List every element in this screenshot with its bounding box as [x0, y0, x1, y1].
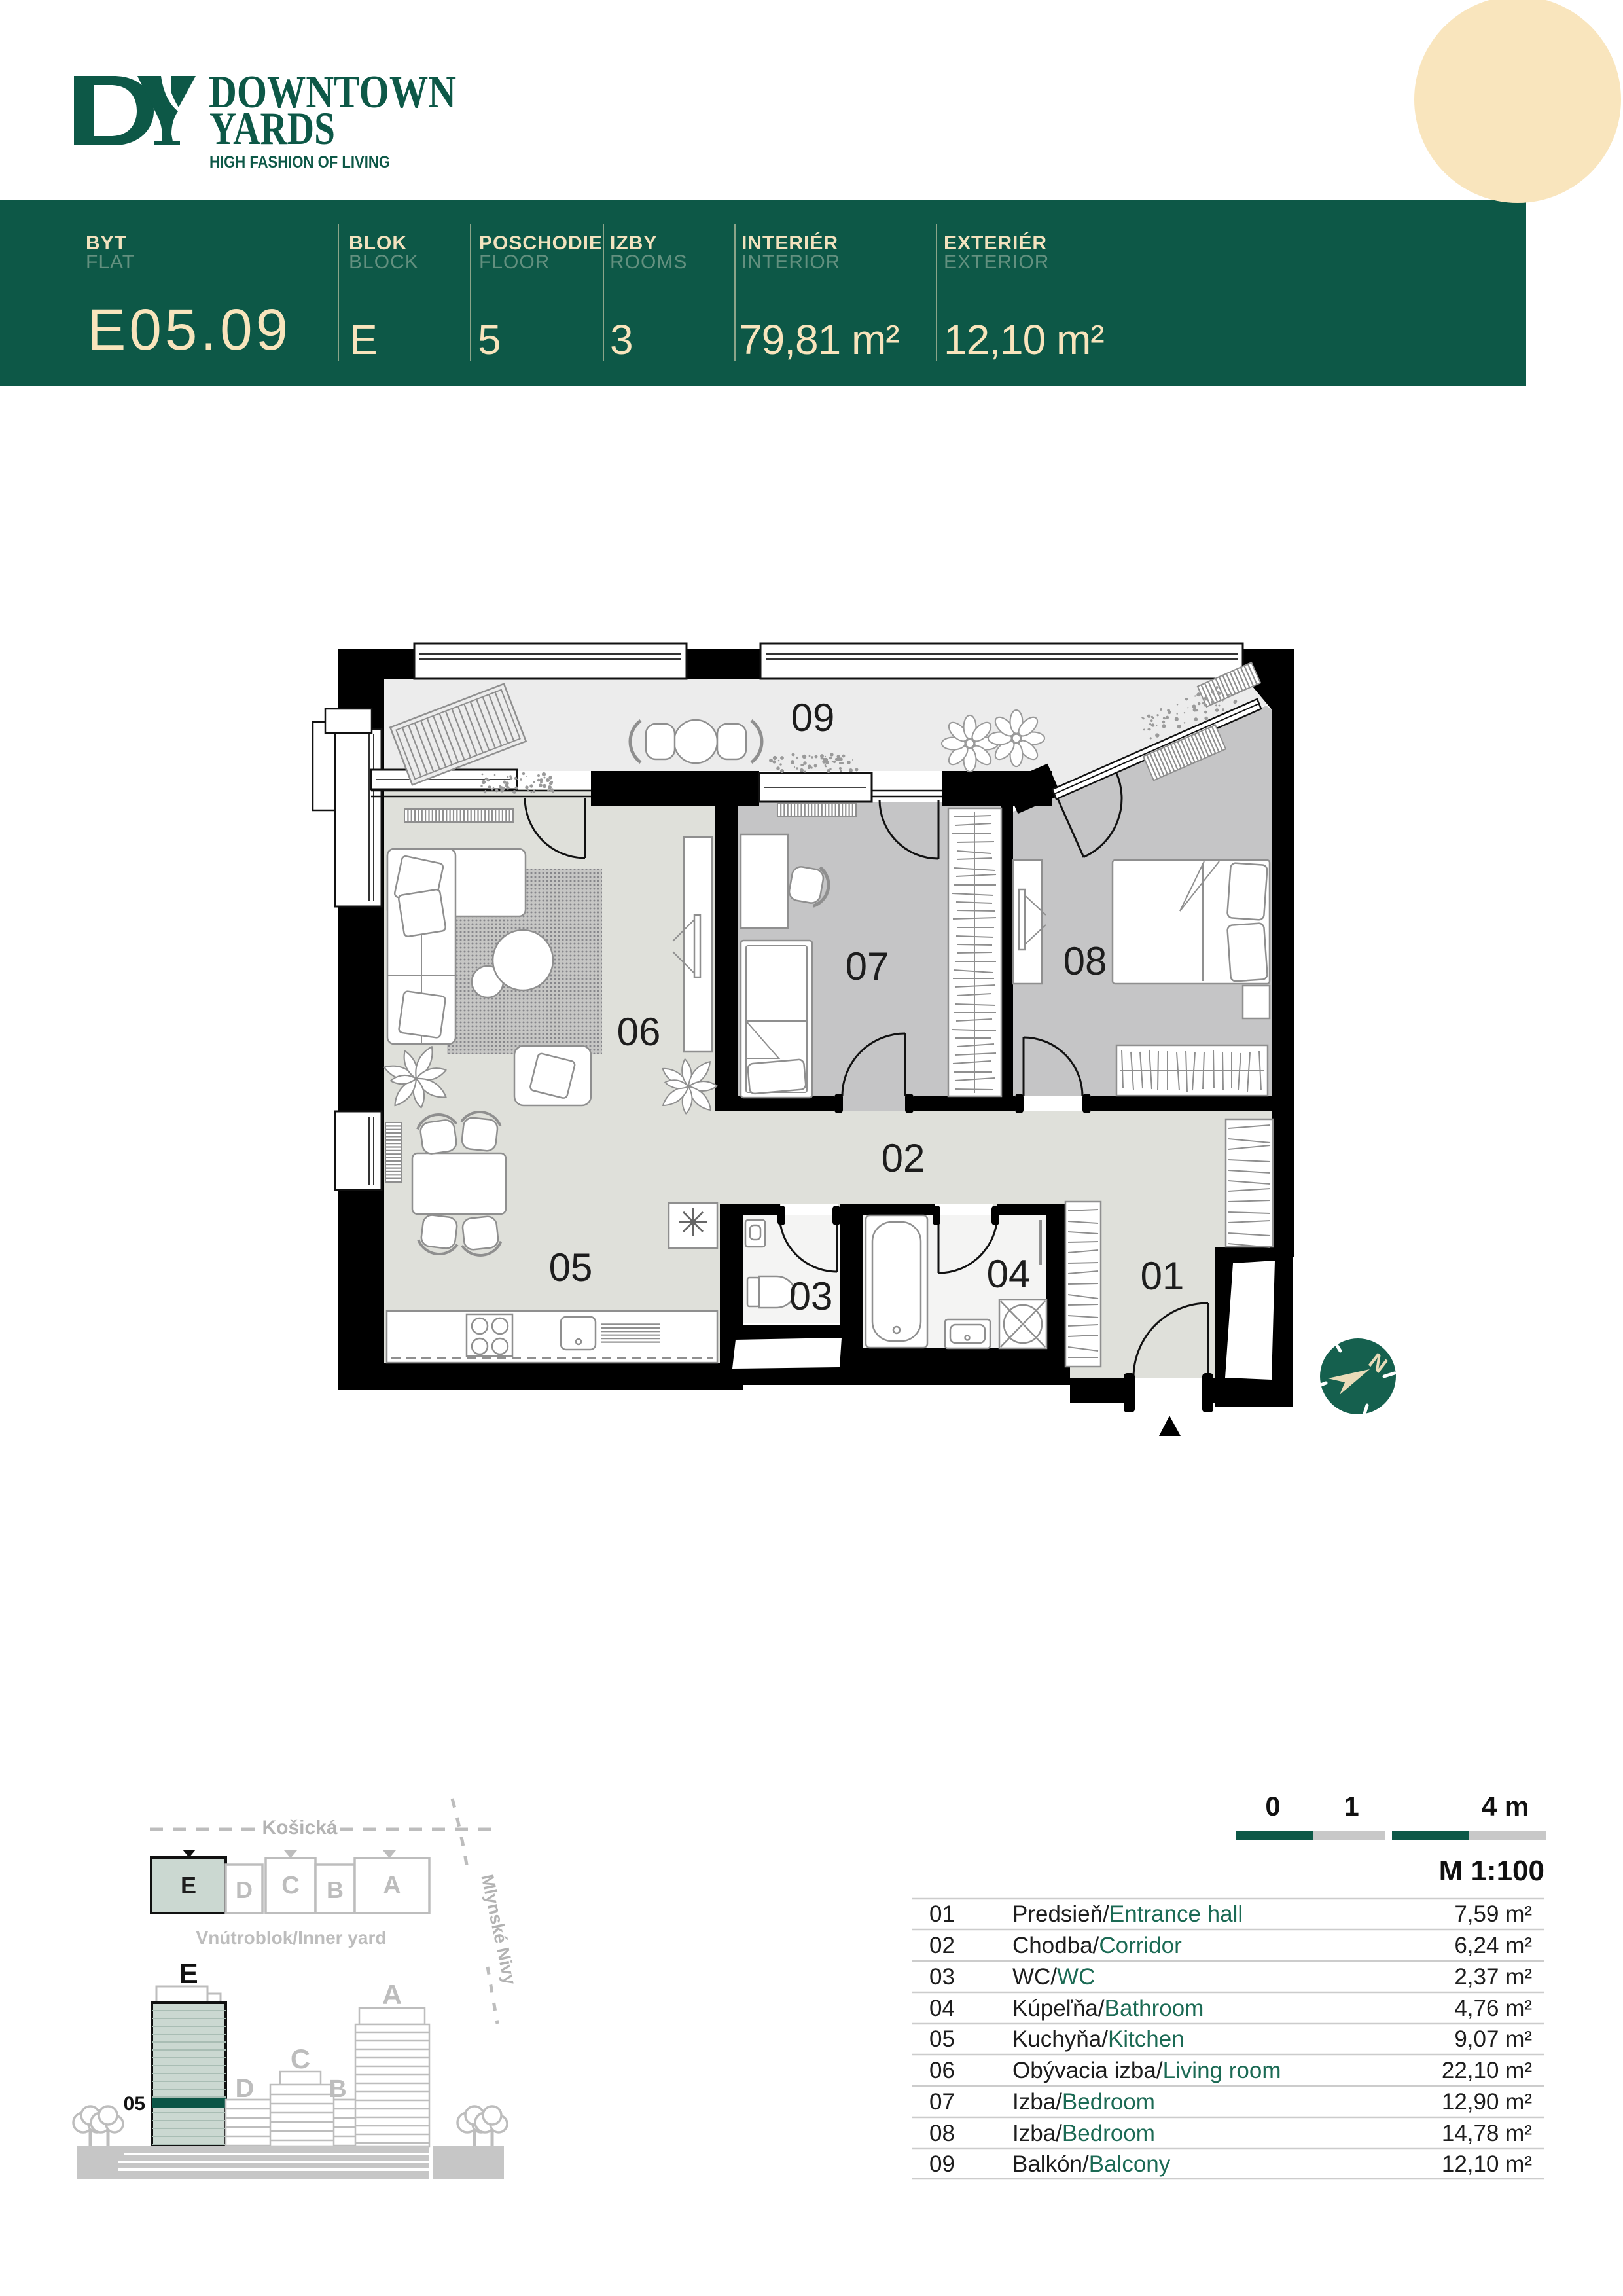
svg-text:E: E	[179, 1958, 198, 1990]
svg-text:09: 09	[929, 2151, 955, 2177]
svg-text:14,78 m²: 14,78 m²	[1442, 2121, 1532, 2146]
svg-text:✳: ✳	[677, 1202, 709, 1244]
svg-text:04: 04	[929, 1996, 955, 2021]
svg-text:6,24 m²: 6,24 m²	[1454, 1933, 1532, 1958]
svg-text:D: D	[236, 1876, 253, 1903]
svg-text:Obývacia izba/Living room: Obývacia izba/Living room	[1012, 2058, 1281, 2083]
svg-text:E: E	[181, 1872, 196, 1899]
svg-text:Izba/Bedroom: Izba/Bedroom	[1012, 2121, 1155, 2146]
svg-text:06: 06	[617, 1010, 661, 1054]
svg-text:C: C	[281, 1872, 299, 1899]
svg-text:Košická: Košická	[262, 1817, 337, 1839]
svg-text:02: 02	[882, 1136, 925, 1180]
svg-text:01: 01	[1141, 1254, 1185, 1298]
svg-text:02: 02	[929, 1933, 955, 1958]
svg-text:Kuchyňa/Kitchen: Kuchyňa/Kitchen	[1012, 2026, 1185, 2052]
svg-text:M 1:100: M 1:100	[1439, 1855, 1544, 1887]
svg-text:9,07 m²: 9,07 m²	[1454, 2026, 1532, 2052]
svg-text:Izba/Bedroom: Izba/Bedroom	[1012, 2089, 1155, 2115]
svg-text:A: A	[383, 1872, 401, 1899]
svg-text:01: 01	[929, 1901, 955, 1927]
svg-text:4,76 m²: 4,76 m²	[1454, 1996, 1532, 2021]
svg-text:A: A	[382, 1979, 402, 2010]
svg-text:B: B	[327, 1876, 344, 1903]
svg-text:Mlynské Nivy: Mlynské Nivy	[477, 1873, 520, 1986]
svg-text:04: 04	[987, 1252, 1031, 1296]
svg-text:Balkón/Balcony: Balkón/Balcony	[1012, 2151, 1171, 2177]
svg-text:0: 0	[1265, 1791, 1280, 1821]
svg-text:C: C	[291, 2043, 310, 2074]
svg-text:06: 06	[929, 2058, 955, 2083]
svg-text:07: 07	[846, 944, 889, 988]
svg-text:2,37 m²: 2,37 m²	[1454, 1964, 1532, 1990]
svg-text:Predsieň/Entrance hall: Predsieň/Entrance hall	[1012, 1901, 1243, 1927]
svg-text:4 m: 4 m	[1482, 1791, 1529, 1821]
svg-text:7,59 m²: 7,59 m²	[1454, 1901, 1532, 1927]
svg-text:Chodba/Corridor: Chodba/Corridor	[1012, 1933, 1182, 1958]
svg-text:22,10 m²: 22,10 m²	[1442, 2058, 1532, 2083]
svg-text:08: 08	[1063, 939, 1107, 983]
svg-text:08: 08	[929, 2121, 955, 2146]
svg-text:03: 03	[929, 1964, 955, 1990]
svg-text:12,10 m²: 12,10 m²	[1442, 2151, 1532, 2177]
svg-text:05: 05	[929, 2026, 955, 2052]
svg-text:Kúpeľňa/Bathroom: Kúpeľňa/Bathroom	[1012, 1996, 1204, 2021]
svg-text:07: 07	[929, 2089, 955, 2115]
svg-text:05: 05	[124, 2093, 145, 2115]
svg-text:1: 1	[1344, 1791, 1359, 1821]
svg-text:09: 09	[791, 696, 835, 740]
svg-text:D: D	[236, 2074, 255, 2103]
svg-text:05: 05	[549, 1246, 593, 1289]
svg-text:03: 03	[789, 1274, 833, 1318]
svg-text:Vnútroblok/Inner yard: Vnútroblok/Inner yard	[196, 1928, 387, 1948]
svg-text:WC/WC: WC/WC	[1012, 1964, 1095, 1990]
svg-text:12,90 m²: 12,90 m²	[1442, 2089, 1532, 2115]
svg-text:B: B	[329, 2075, 346, 2103]
